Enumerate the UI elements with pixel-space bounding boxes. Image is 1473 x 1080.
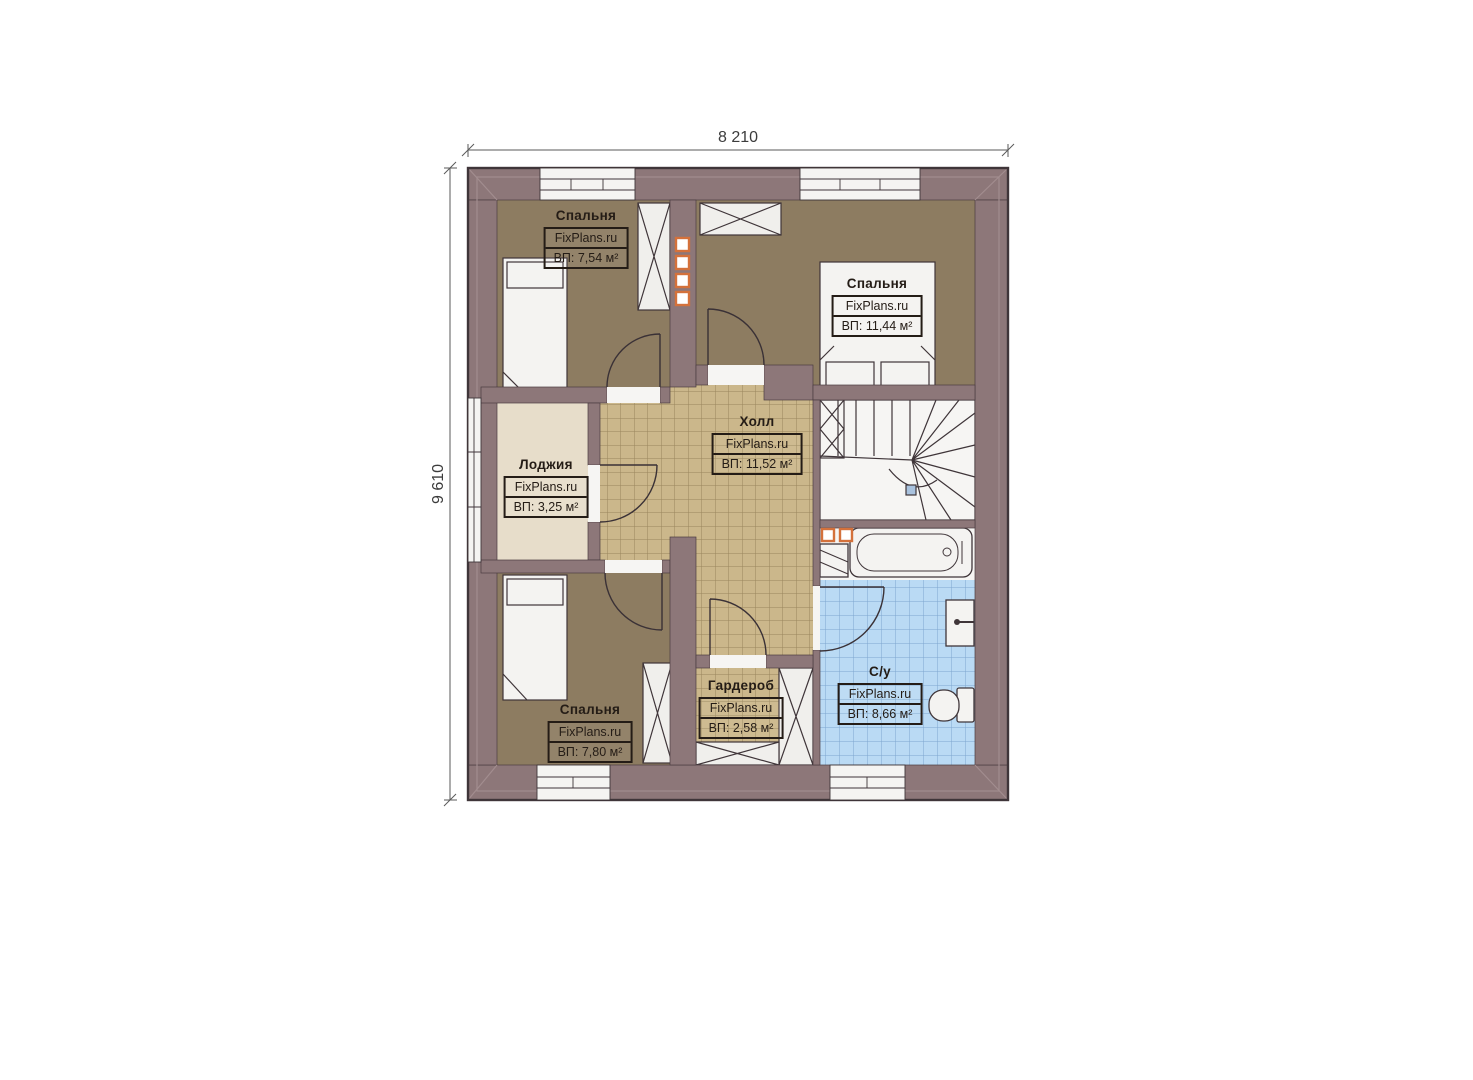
room-info-box: FixPlans.ru ВП: 3,25 м²: [504, 476, 589, 519]
room-name: Спальня: [544, 208, 629, 224]
window-top-left: [540, 168, 635, 200]
loggia-window: [468, 398, 481, 562]
area-row: ВП: 2,58 м²: [701, 717, 782, 737]
area-row: ВП: 11,52 м²: [714, 453, 801, 473]
dimension-width-label: 8 210: [718, 129, 758, 146]
brand-row: FixPlans.ru: [834, 297, 921, 315]
room-info-box: FixPlans.ru ВП: 11,44 м²: [832, 295, 923, 338]
brand-row: FixPlans.ru: [714, 435, 801, 453]
room-label-bedroom-bottom-left: Спальня FixPlans.ru ВП: 7,80 м²: [548, 702, 633, 763]
room-info-box: FixPlans.ru ВП: 7,80 м²: [548, 721, 633, 764]
closet-icon: [643, 663, 672, 763]
room-name: Холл: [712, 414, 803, 430]
room-name: Спальня: [832, 276, 923, 292]
bed-icon: [503, 575, 567, 700]
room-info-box: FixPlans.ru ВП: 7,54 м²: [544, 227, 629, 270]
brand-row: FixPlans.ru: [840, 685, 921, 703]
window-top-right: [800, 168, 920, 200]
area-row: ВП: 11,44 м²: [834, 315, 921, 335]
dimension-height-label: 9 610: [430, 464, 447, 504]
room-info-box: FixPlans.ru ВП: 2,58 м²: [699, 697, 784, 740]
room-label-bedroom-top-left: Спальня FixPlans.ru ВП: 7,54 м²: [544, 208, 629, 269]
floor-plan-drawing: 8 210 9 610: [0, 0, 1473, 1080]
area-row: ВП: 3,25 м²: [506, 496, 587, 516]
brand-row: FixPlans.ru: [506, 478, 587, 496]
staircase: [820, 400, 975, 520]
brand-row: FixPlans.ru: [546, 229, 627, 247]
area-row: ВП: 7,54 м²: [546, 247, 627, 267]
bed-icon: [503, 258, 567, 398]
hall-floor: [670, 387, 696, 537]
room-label-hall: Холл FixPlans.ru ВП: 11,52 м²: [712, 414, 803, 475]
dimension-top: 8 210: [462, 129, 1014, 157]
closet-icon: [700, 203, 781, 235]
room-name: Спальня: [548, 702, 633, 718]
room-name: Гардероб: [699, 678, 784, 694]
room-info-box: FixPlans.ru ВП: 8,66 м²: [838, 683, 923, 726]
room-label-wardrobe: Гардероб FixPlans.ru ВП: 2,58 м²: [699, 678, 784, 739]
room-label-bedroom-top-right: Спальня FixPlans.ru ВП: 11,44 м²: [832, 276, 923, 337]
toilet-icon: [929, 688, 974, 722]
room-info-box: FixPlans.ru ВП: 11,52 м²: [712, 433, 803, 476]
dimension-left: 9 610: [430, 162, 457, 806]
hall-floor: [600, 403, 670, 560]
room-name: Лоджия: [504, 457, 589, 473]
room-label-bathroom: С/у FixPlans.ru ВП: 8,66 м²: [838, 664, 923, 725]
window-bottom-right: [830, 765, 905, 800]
area-row: ВП: 7,80 м²: [550, 741, 631, 761]
closet-icon: [638, 203, 670, 310]
bathtub-icon: [850, 528, 972, 577]
stair-newel-post: [906, 485, 916, 495]
area-row: ВП: 8,66 м²: [840, 703, 921, 723]
window-bottom-left: [537, 765, 610, 800]
shelf-icon: [820, 544, 848, 577]
brand-row: FixPlans.ru: [550, 723, 631, 741]
brand-row: FixPlans.ru: [701, 699, 782, 717]
sink-icon: [946, 600, 974, 646]
floor-plan-page: 8 210 9 610 Спальня FixPlans.ru ВП: 7,54…: [0, 0, 1473, 1080]
room-label-loggia: Лоджия FixPlans.ru ВП: 3,25 м²: [504, 457, 589, 518]
room-name: С/у: [838, 664, 923, 680]
